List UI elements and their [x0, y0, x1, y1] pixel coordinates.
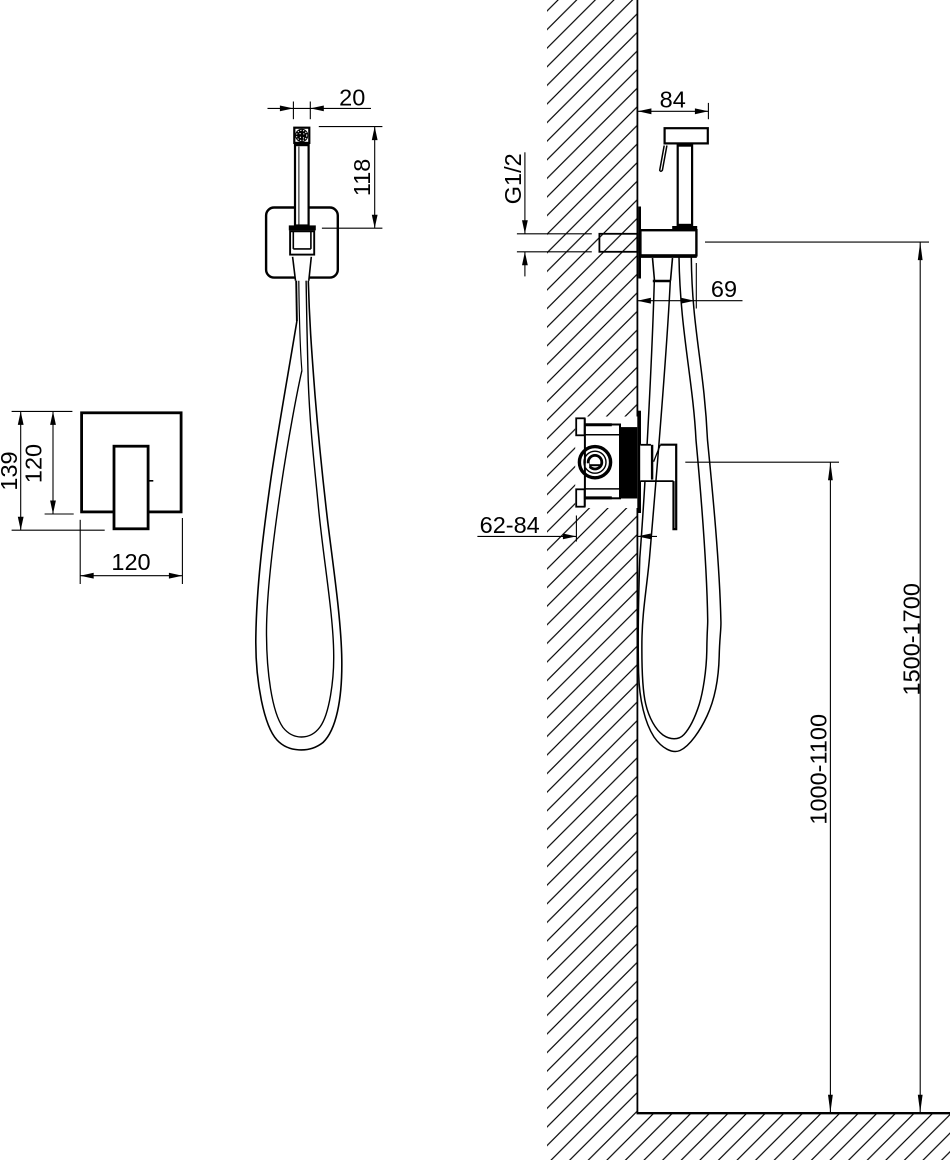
svg-text:139: 139	[0, 451, 22, 490]
svg-text:G1/2: G1/2	[500, 153, 526, 204]
svg-text:20: 20	[339, 85, 365, 111]
svg-text:62-84: 62-84	[480, 512, 540, 538]
svg-text:120: 120	[20, 444, 46, 483]
svg-text:1000-1100: 1000-1100	[805, 714, 831, 825]
svg-text:69: 69	[711, 276, 737, 302]
svg-text:1500-1700: 1500-1700	[898, 583, 924, 695]
svg-text:84: 84	[660, 87, 686, 113]
svg-text:120: 120	[111, 549, 150, 575]
svg-text:118: 118	[349, 159, 375, 196]
